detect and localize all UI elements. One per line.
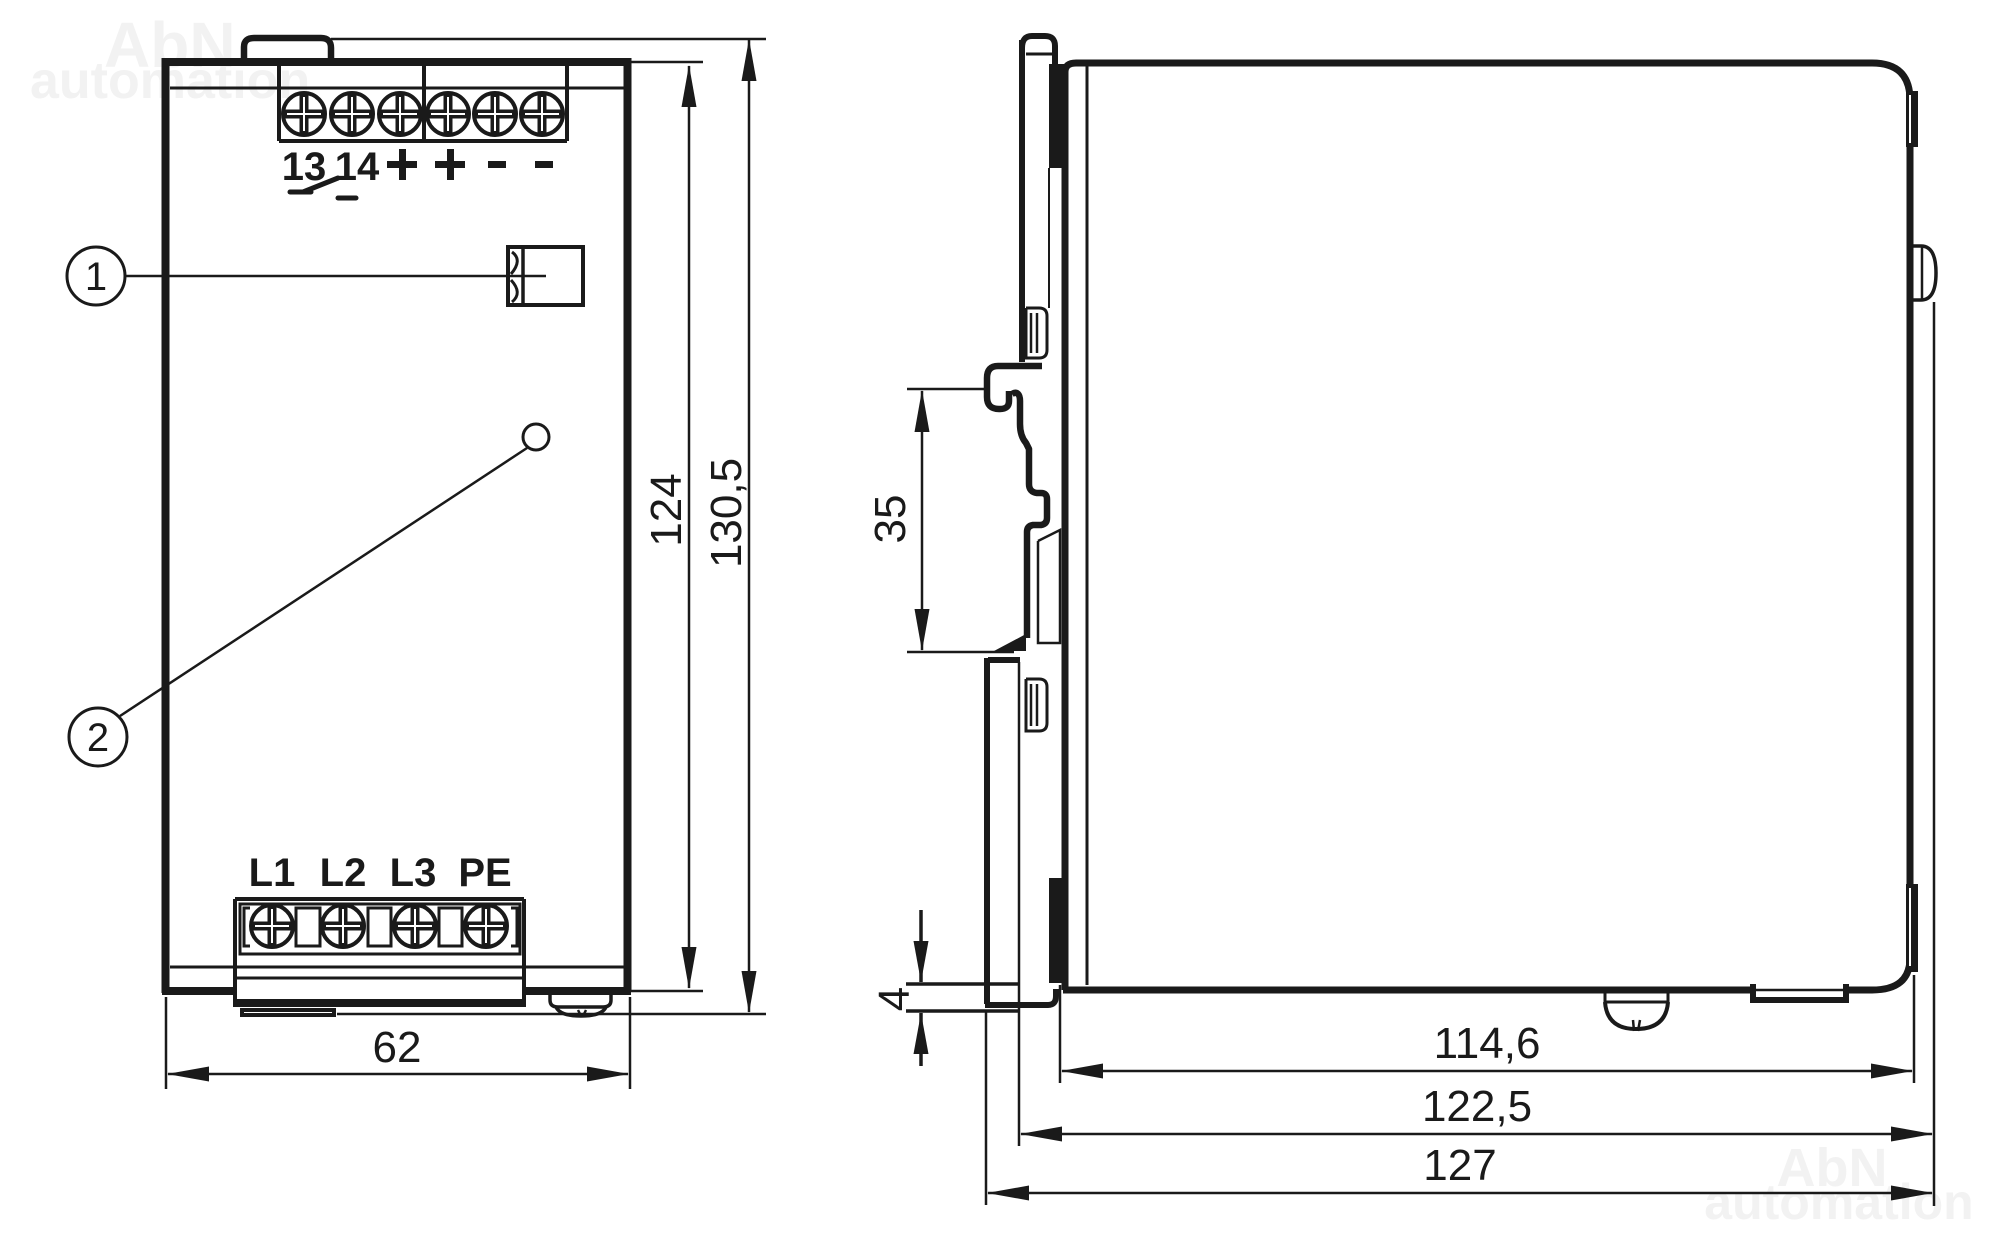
svg-text:127: 127 bbox=[1423, 1141, 1496, 1190]
svg-text:14: 14 bbox=[335, 145, 380, 189]
svg-text:124: 124 bbox=[642, 473, 691, 546]
svg-text:L2: L2 bbox=[320, 851, 367, 895]
svg-text:62: 62 bbox=[373, 1023, 422, 1072]
svg-text:13: 13 bbox=[282, 145, 327, 189]
svg-text:4: 4 bbox=[870, 987, 919, 1011]
svg-text:2: 2 bbox=[87, 716, 109, 760]
svg-text:130,5: 130,5 bbox=[702, 458, 751, 568]
svg-text:PE: PE bbox=[458, 851, 511, 895]
svg-text:L1: L1 bbox=[249, 851, 296, 895]
svg-text:114,6: 114,6 bbox=[1434, 1019, 1541, 1068]
svg-text:L3: L3 bbox=[390, 851, 437, 895]
svg-text:122,5: 122,5 bbox=[1422, 1082, 1532, 1131]
svg-text:35: 35 bbox=[866, 495, 915, 544]
svg-text:1: 1 bbox=[85, 255, 107, 299]
